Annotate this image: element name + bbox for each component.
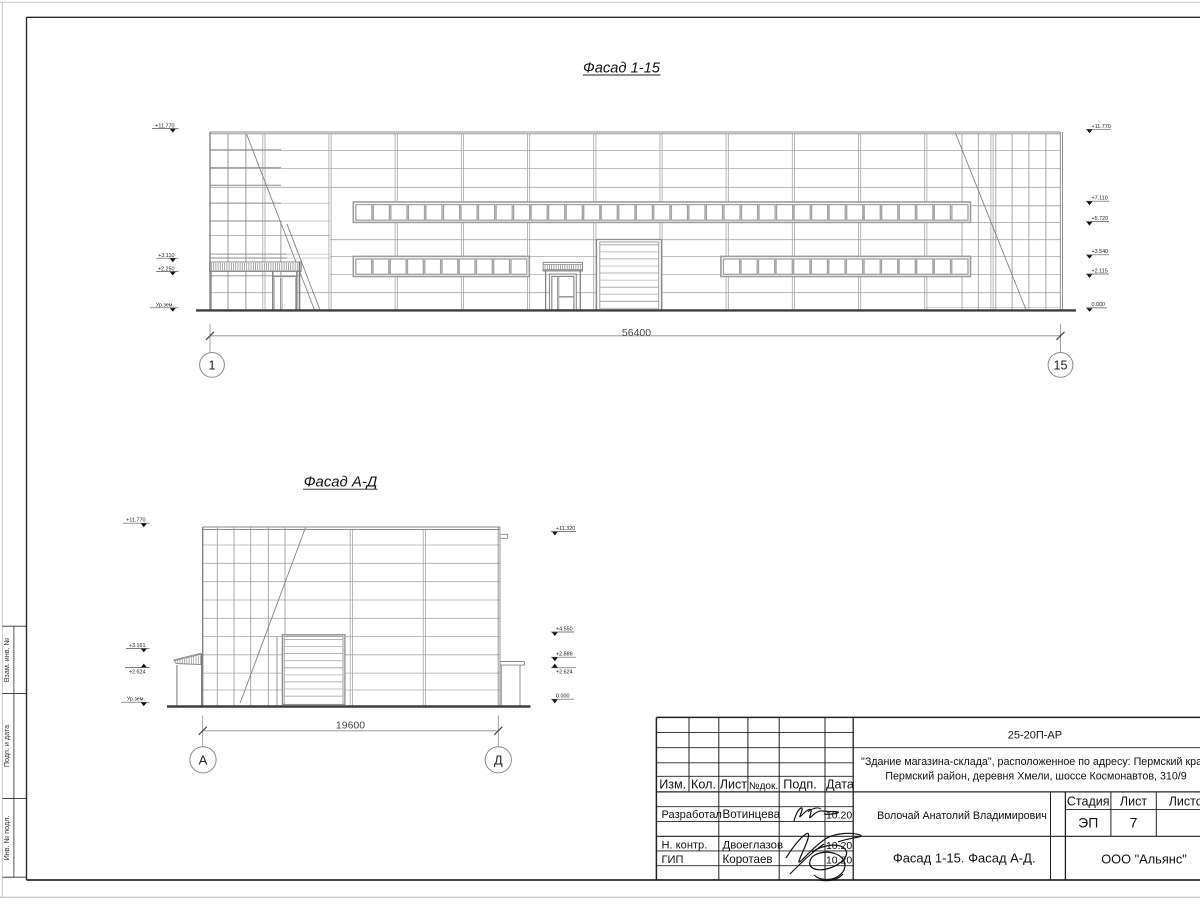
svg-text:Инв. № подл.: Инв. № подл. xyxy=(2,816,11,861)
svg-text:+7.110: +7.110 xyxy=(1092,196,1108,202)
svg-text:Кол.: Кол. xyxy=(691,777,716,791)
svg-text:Н. контр.: Н. контр. xyxy=(662,839,708,851)
svg-text:ООО "Альянс": ООО "Альянс" xyxy=(1101,852,1187,867)
svg-text:Коротаев: Коротаев xyxy=(723,853,773,866)
svg-text:Фасад 1-15: Фасад 1-15 xyxy=(583,61,661,77)
svg-text:"Здание магазина-склада", расп: "Здание магазина-склада", расположенное … xyxy=(861,756,1200,768)
svg-text:Ур.зем.: Ур.зем. xyxy=(156,302,174,308)
svg-text:А: А xyxy=(199,753,208,768)
svg-text:Фасад А-Д: Фасад А-Д xyxy=(304,475,378,491)
svg-text:Стадия: Стадия xyxy=(1067,795,1110,809)
svg-text:ГИП: ГИП xyxy=(662,854,684,866)
svg-text:Разработал: Разработал xyxy=(662,809,722,821)
svg-text:№док.: №док. xyxy=(749,781,778,792)
svg-text:+11.320: +11.320 xyxy=(556,526,575,532)
svg-text:7: 7 xyxy=(1130,815,1138,831)
svg-text:19600: 19600 xyxy=(336,720,365,732)
svg-text:+2.624: +2.624 xyxy=(556,670,573,676)
svg-text:+3.540: +3.540 xyxy=(1092,249,1109,255)
svg-text:Изм.: Изм. xyxy=(659,777,686,791)
svg-text:Вотинцева: Вотинцева xyxy=(723,808,781,821)
svg-text:+11.770: +11.770 xyxy=(1092,124,1111,130)
svg-text:Фасад 1-15. Фасад А-Д.: Фасад 1-15. Фасад А-Д. xyxy=(893,851,1036,866)
svg-text:15: 15 xyxy=(1054,358,1068,372)
svg-text:+11.770: +11.770 xyxy=(126,518,145,524)
svg-text:Листов: Листов xyxy=(1169,795,1200,809)
svg-text:Подп. и дата: Подп. и дата xyxy=(2,725,11,767)
svg-text:Дата: Дата xyxy=(826,777,854,791)
svg-text:Волочай Анатолий Владимирович: Волочай Анатолий Владимирович xyxy=(877,810,1047,822)
svg-text:0.000: 0.000 xyxy=(556,694,570,700)
svg-text:+4.550: +4.550 xyxy=(556,627,573,633)
svg-text:Ур.зем.: Ур.зем. xyxy=(127,697,145,703)
svg-text:56400: 56400 xyxy=(622,327,651,339)
svg-text:0.000: 0.000 xyxy=(1092,302,1106,308)
svg-text:+2.624: +2.624 xyxy=(129,669,146,675)
svg-text:25-20П-АР: 25-20П-АР xyxy=(1008,730,1062,742)
svg-text:1: 1 xyxy=(209,358,216,372)
svg-text:Пермский район, деревня Хмели,: Пермский район, деревня Хмели, шоссе Кос… xyxy=(885,771,1186,783)
svg-text:Взам. инв. №: Взам. инв. № xyxy=(2,637,11,682)
svg-text:+2.886: +2.886 xyxy=(556,652,573,658)
svg-text:ЭП: ЭП xyxy=(1078,815,1098,831)
svg-text:Двоеглазов: Двоеглазов xyxy=(723,839,784,851)
svg-text:Д: Д xyxy=(494,753,503,768)
svg-text:+3.161: +3.161 xyxy=(129,643,146,649)
svg-text:Подп.: Подп. xyxy=(783,777,816,791)
svg-text:+2.115: +2.115 xyxy=(1092,268,1108,274)
svg-text:Лист: Лист xyxy=(1120,795,1147,809)
svg-text:Лист: Лист xyxy=(720,777,748,791)
svg-text:+5.720: +5.720 xyxy=(1092,216,1109,222)
